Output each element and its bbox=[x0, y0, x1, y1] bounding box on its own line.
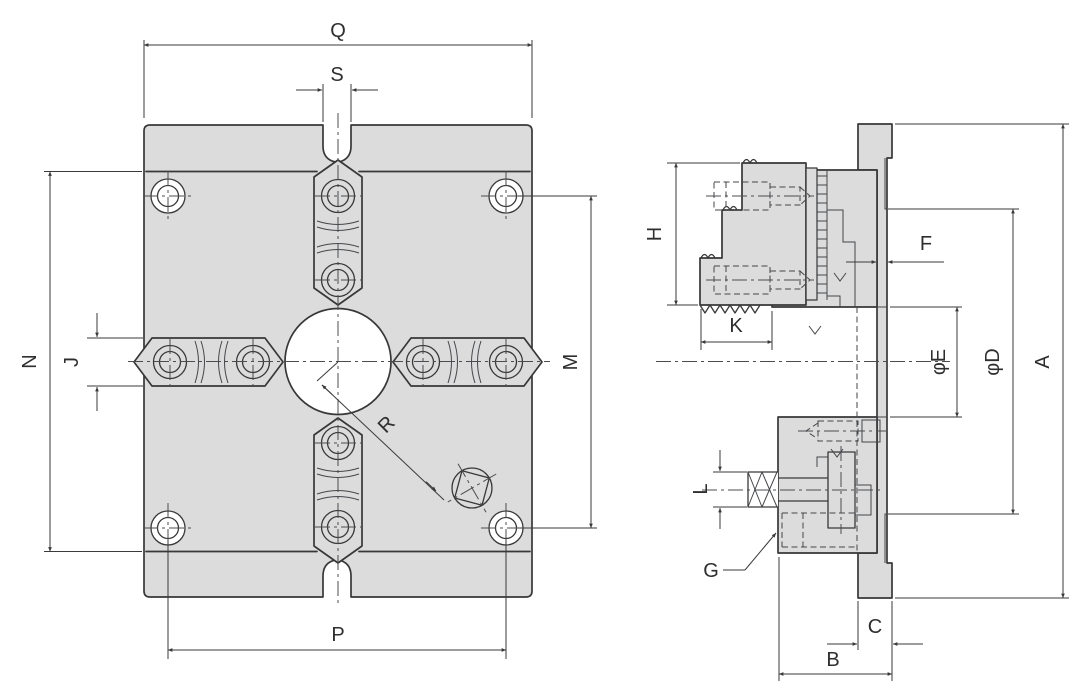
drawing-page: R Q S N J bbox=[0, 0, 1081, 695]
dim-label-a: A bbox=[1032, 355, 1054, 369]
dim-label-d: φD bbox=[982, 348, 1004, 375]
dim-label-l: L bbox=[690, 483, 712, 494]
dim-label-h: H bbox=[644, 227, 666, 241]
dim-label-c: C bbox=[868, 616, 882, 638]
jaw-section bbox=[700, 163, 806, 305]
dim-label-e: φE bbox=[928, 349, 950, 375]
dim-s bbox=[296, 84, 378, 122]
dim-c bbox=[827, 601, 923, 681]
dim-label-s: S bbox=[330, 64, 343, 86]
technical-drawing: R Q S N J bbox=[0, 0, 1081, 695]
dim-label-g: G bbox=[703, 560, 719, 582]
dim-label-j: J bbox=[61, 357, 83, 367]
dim-label-q: Q bbox=[330, 20, 346, 42]
dim-label-p: P bbox=[331, 624, 344, 646]
dim-label-m: M bbox=[560, 354, 582, 371]
dim-label-k: K bbox=[729, 315, 743, 337]
dim-g bbox=[723, 533, 776, 570]
dim-label-f: F bbox=[920, 233, 932, 255]
dim-n bbox=[44, 172, 142, 552]
dim-label-b: B bbox=[826, 649, 839, 671]
front-view: R Q S N J bbox=[19, 20, 597, 659]
dim-label-n: N bbox=[19, 354, 41, 368]
side-view: H K F φE φD bbox=[644, 124, 1069, 681]
